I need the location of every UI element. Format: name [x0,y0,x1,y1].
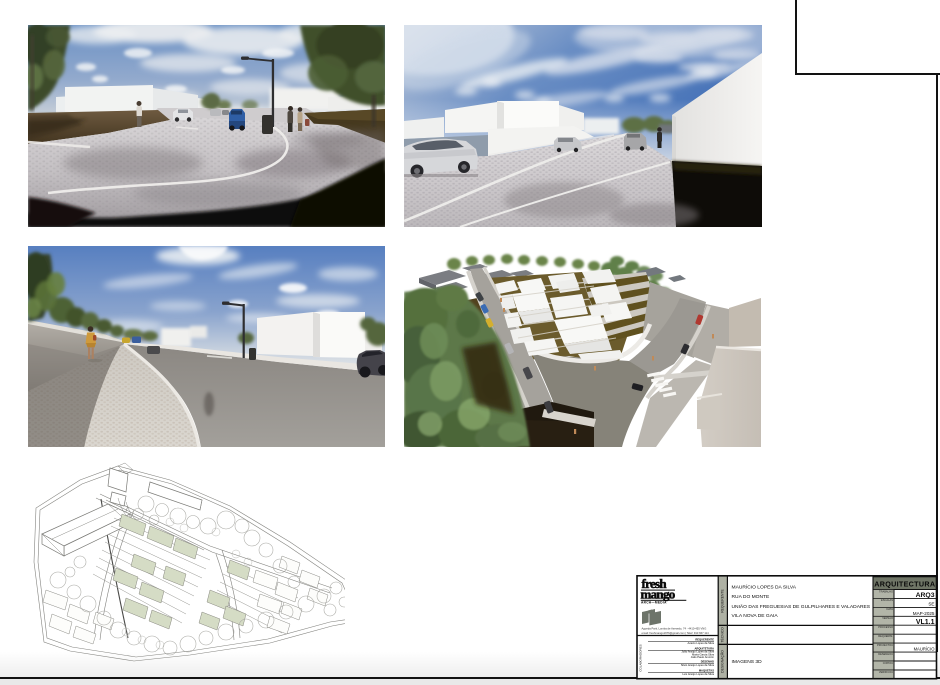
svg-text:ESCALAS: ESCALAS [881,598,893,602]
svg-text:DESIGNAÇÃO: DESIGNAÇÃO [720,650,725,673]
svg-text:MAURÍCIO LOPES DA SILVA: MAURÍCIO LOPES DA SILVA [732,584,797,591]
svg-text:REQUERENTE: REQUERENTE [695,637,714,641]
svg-text:MAP-2025: MAP-2025 [913,611,935,616]
svg-text:SE: SE [928,602,934,607]
svg-text:ARQ3: ARQ3 [916,592,935,599]
svg-text:COPIOU: COPIOU [883,661,893,665]
svg-text:MAQUETAS: MAQUETAS [699,668,714,672]
svg-text:João Paulo Amorim: João Paulo Amorim [691,655,715,659]
svg-text:DATA: DATA [886,607,893,611]
svg-text:mango: mango [641,587,675,602]
svg-text:MAURÍCIO: MAURÍCIO [914,647,936,652]
svg-text:ARQUITECTURA: ARQUITECTURA [874,580,935,589]
svg-text:DESENHO: DESENHO [701,659,714,663]
svg-text:VILA NOVA DE GAIA: VILA NOVA DE GAIA [732,613,779,619]
svg-text:COLABORADORES: COLABORADORES [639,644,643,671]
svg-text:ARCH—MEDIA: ARCH—MEDIA [641,601,667,605]
svg-text:DESENHOU: DESENHOU [878,652,893,656]
svg-text:email: freshmango1976@gmail.co: email: freshmango1976@gmail.com | Telef:… [642,631,710,635]
svg-text:VERSAO: VERSAO [882,616,893,620]
svg-text:IMAGENS 3D: IMAGENS 3D [732,659,763,665]
svg-text:TÉCNICO: TÉCNICO [720,627,725,643]
svg-text:Agueda Park, Lomba de Azevedo,: Agueda Park, Lomba de Azevedo, 74 - 4410… [642,627,707,631]
svg-text:REQUERIM.: REQUERIM. [878,634,893,638]
svg-text:VL1.1: VL1.1 [916,619,935,626]
svg-text:PROJECTOU: PROJECTOU [877,643,893,647]
svg-text:REQUERENTE: REQUERENTE [721,588,725,612]
svg-text:UNIÃO DAS FREGUESIAS DE GULPIL: UNIÃO DAS FREGUESIAS DE GULPILHARES E VA… [732,603,871,610]
svg-text:Acacio Lopes da Silva: Acacio Lopes da Silva [688,641,715,645]
svg-text:PROCESSO: PROCESSO [878,625,893,629]
svg-text:RUA DO MONTE: RUA DO MONTE [732,594,771,600]
svg-text:VERIFICOU: VERIFICOU [879,670,893,674]
svg-text:TRABALHO: TRABALHO [879,589,893,593]
